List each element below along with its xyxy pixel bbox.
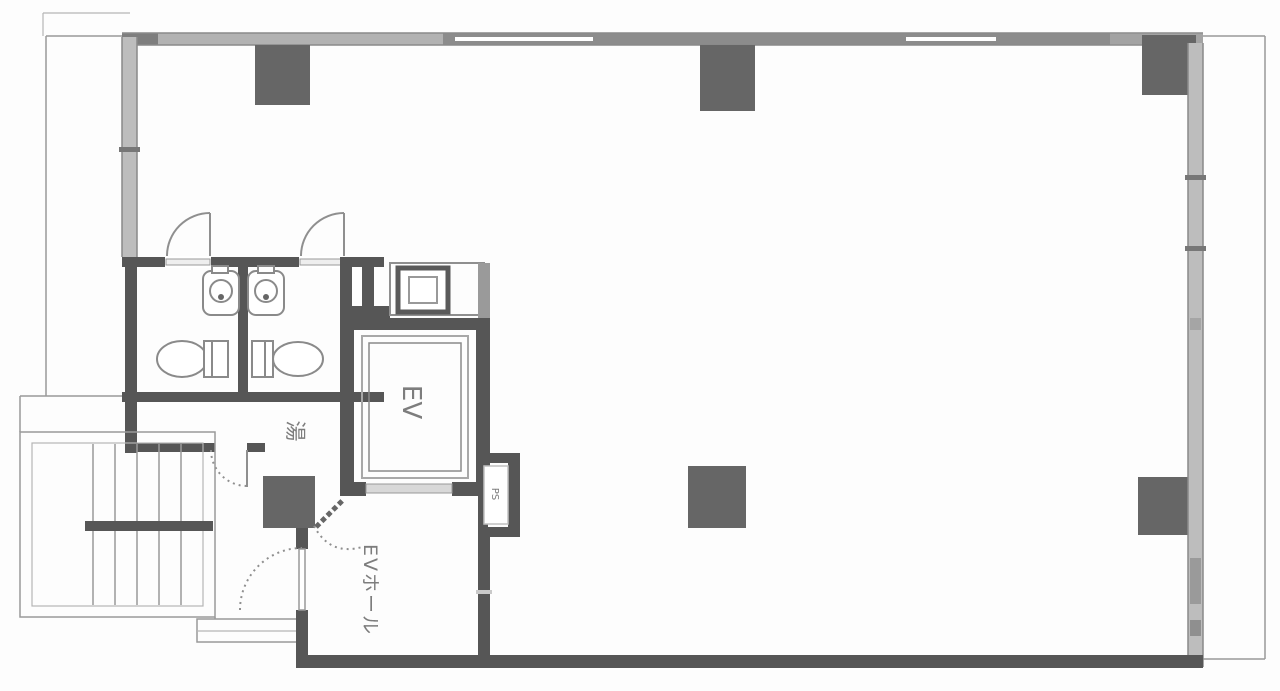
wc-door-right — [301, 213, 344, 256]
pipe-space-label: PS — [489, 488, 500, 500]
hall-fire-door — [314, 499, 362, 549]
service-room-label: 湯 — [283, 421, 307, 442]
top-exterior-wall — [122, 33, 1203, 45]
service-door — [211, 450, 247, 487]
elevator-label: EV — [396, 385, 426, 419]
pipe-space: PS — [478, 453, 520, 537]
machine-box — [390, 263, 490, 320]
column — [1138, 477, 1190, 535]
elevator-door — [366, 484, 452, 493]
floor-plan-drawing: 湯 EV — [0, 0, 1280, 691]
elevator-hall-label: EVホール — [359, 544, 381, 636]
wc-door-opening — [166, 259, 210, 265]
wc-door-opening — [300, 259, 344, 265]
column — [688, 466, 746, 528]
left-window-wall — [119, 37, 140, 257]
staircase — [20, 432, 301, 642]
stair-landing-edge — [85, 521, 213, 531]
floor-plan-scan: 湯 EV — [0, 0, 1280, 691]
sink-right — [248, 266, 284, 315]
sink-left — [203, 266, 239, 315]
column — [255, 45, 310, 105]
right-window-wall — [1185, 43, 1206, 667]
window-slit — [455, 37, 593, 41]
column — [263, 476, 315, 528]
window-slit — [906, 37, 996, 41]
elevator-shaft: EV — [340, 318, 490, 496]
entry-porch — [197, 617, 301, 642]
column — [700, 45, 755, 111]
toilet-right — [252, 341, 323, 377]
wc-door-left — [167, 213, 210, 256]
bottom-exterior-wall — [296, 655, 1203, 668]
toilet-left — [157, 341, 228, 377]
exterior-outline — [20, 13, 1265, 659]
entrance-door — [240, 548, 305, 610]
